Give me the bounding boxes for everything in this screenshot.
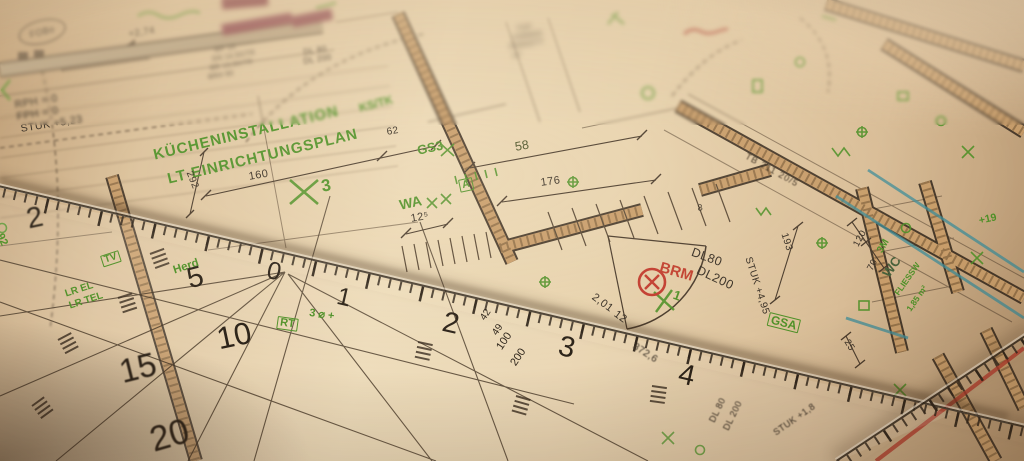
red-annotation-scribble bbox=[684, 29, 728, 34]
ruler-fan-10: 10 bbox=[214, 317, 254, 354]
dim-58: 58 bbox=[514, 139, 530, 154]
dim-8: 8 bbox=[697, 203, 704, 213]
ruler-fan-15: 15 bbox=[116, 347, 160, 388]
fobo-stamp-label: FOBo bbox=[29, 24, 56, 39]
mark-rt-box: RT bbox=[276, 316, 298, 332]
blueprint-photo-scene: FOBo +2,74 RPH = 0 FPH = 0 STUK +5,23 WF… bbox=[0, 0, 1024, 461]
room-label: m² bbox=[512, 52, 522, 60]
dim-62: 62 bbox=[386, 126, 400, 138]
